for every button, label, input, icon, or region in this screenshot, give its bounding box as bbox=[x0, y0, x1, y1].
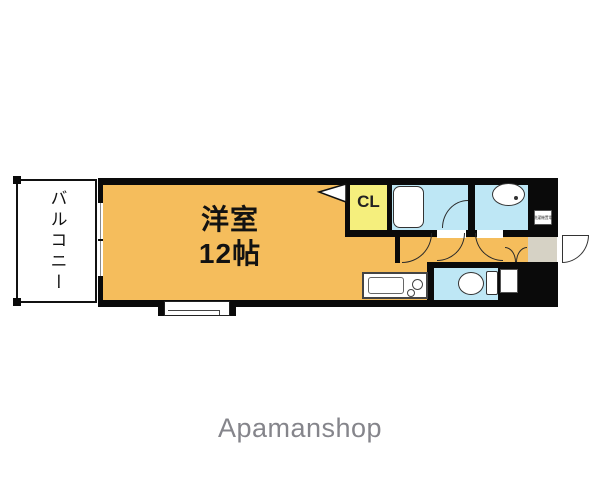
wall-closet-bath-divider bbox=[387, 185, 392, 230]
washing-machine-box: 洗濯機置場 bbox=[534, 210, 551, 224]
balcony-corner-block bbox=[13, 176, 21, 184]
brand-logo-text: Apamanshop bbox=[0, 413, 600, 444]
floor-plan-image: バルコニー 洗濯機置場 bbox=[0, 0, 600, 480]
wall-toilet-top bbox=[427, 262, 498, 268]
main-room-label: 洋室 12帖 bbox=[155, 203, 305, 271]
toilet-bowl-icon bbox=[458, 272, 484, 295]
main-room-name: 洋室 bbox=[201, 204, 259, 235]
wall-hallway-left bbox=[395, 230, 400, 263]
sink-faucet-dot bbox=[514, 196, 518, 200]
stove-burner-icon bbox=[412, 279, 423, 290]
wall-toilet-left bbox=[427, 262, 434, 307]
bottom-window-sill bbox=[164, 301, 230, 316]
main-room-size: 12帖 bbox=[199, 238, 261, 269]
stove-burner-icon bbox=[407, 289, 415, 297]
bottom-window-tick bbox=[219, 310, 220, 315]
wall-bath-washroom-divider bbox=[468, 185, 475, 230]
balcony-corner-block bbox=[13, 298, 21, 306]
kitchen-sink-icon bbox=[368, 277, 404, 294]
toilet-tank-icon bbox=[486, 271, 498, 295]
entry-genkan-floor bbox=[528, 234, 557, 263]
window-glass-line bbox=[100, 203, 101, 239]
closet-door-icon bbox=[316, 181, 348, 205]
balcony-label: バルコニー bbox=[41, 188, 73, 294]
window-glass-line bbox=[100, 241, 101, 276]
bathtub-icon bbox=[393, 186, 424, 228]
closet-label: CL bbox=[350, 192, 387, 212]
storage-box bbox=[500, 269, 518, 293]
sink-icon bbox=[492, 183, 525, 206]
bottom-window-line bbox=[168, 310, 220, 311]
entrance-door-arc bbox=[562, 235, 589, 263]
